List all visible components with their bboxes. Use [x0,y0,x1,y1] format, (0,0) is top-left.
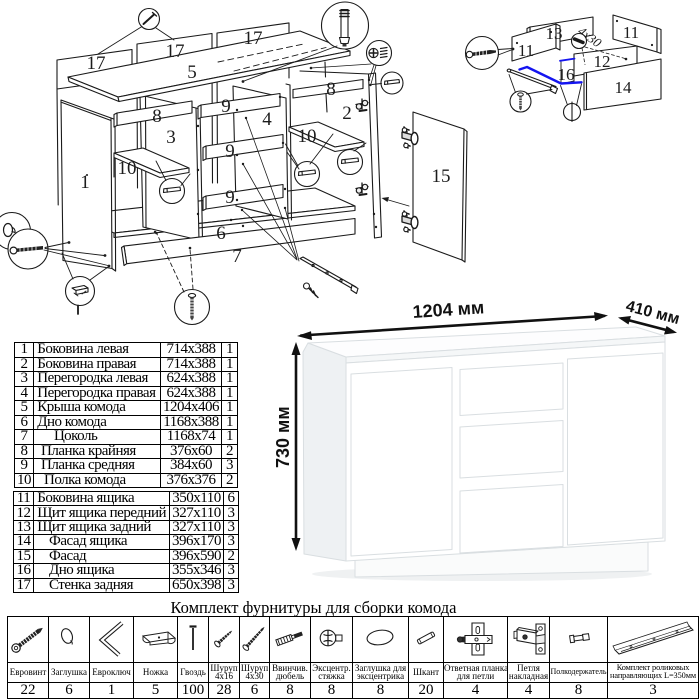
svg-text:3: 3 [166,127,176,148]
svg-text:10: 10 [298,126,317,147]
svg-text:410 мм: 410 мм [624,298,681,328]
svg-text:17: 17 [166,41,185,62]
svg-text:14: 14 [615,78,633,97]
svg-text:7: 7 [232,246,242,267]
svg-text:16: 16 [558,65,575,84]
svg-text:730 мм: 730 мм [273,406,293,468]
svg-text:9: 9 [221,96,231,117]
svg-text:9: 9 [225,141,235,162]
svg-text:11: 11 [518,41,534,60]
svg-text:5: 5 [187,62,197,83]
svg-text:2: 2 [342,103,352,124]
svg-text:17: 17 [244,28,263,49]
svg-text:9: 9 [225,187,235,208]
svg-text:11: 11 [623,23,639,42]
svg-text:8: 8 [152,106,162,127]
svg-text:17: 17 [87,53,106,74]
svg-text:12: 12 [594,52,611,71]
svg-text:10: 10 [118,158,137,179]
svg-text:6: 6 [216,223,226,244]
svg-text:1: 1 [80,172,90,193]
svg-text:4: 4 [262,109,272,130]
svg-text:15: 15 [432,166,451,187]
svg-text:8: 8 [326,79,336,100]
svg-text:1204 мм: 1204 мм [412,297,485,322]
svg-text:13: 13 [546,24,563,43]
